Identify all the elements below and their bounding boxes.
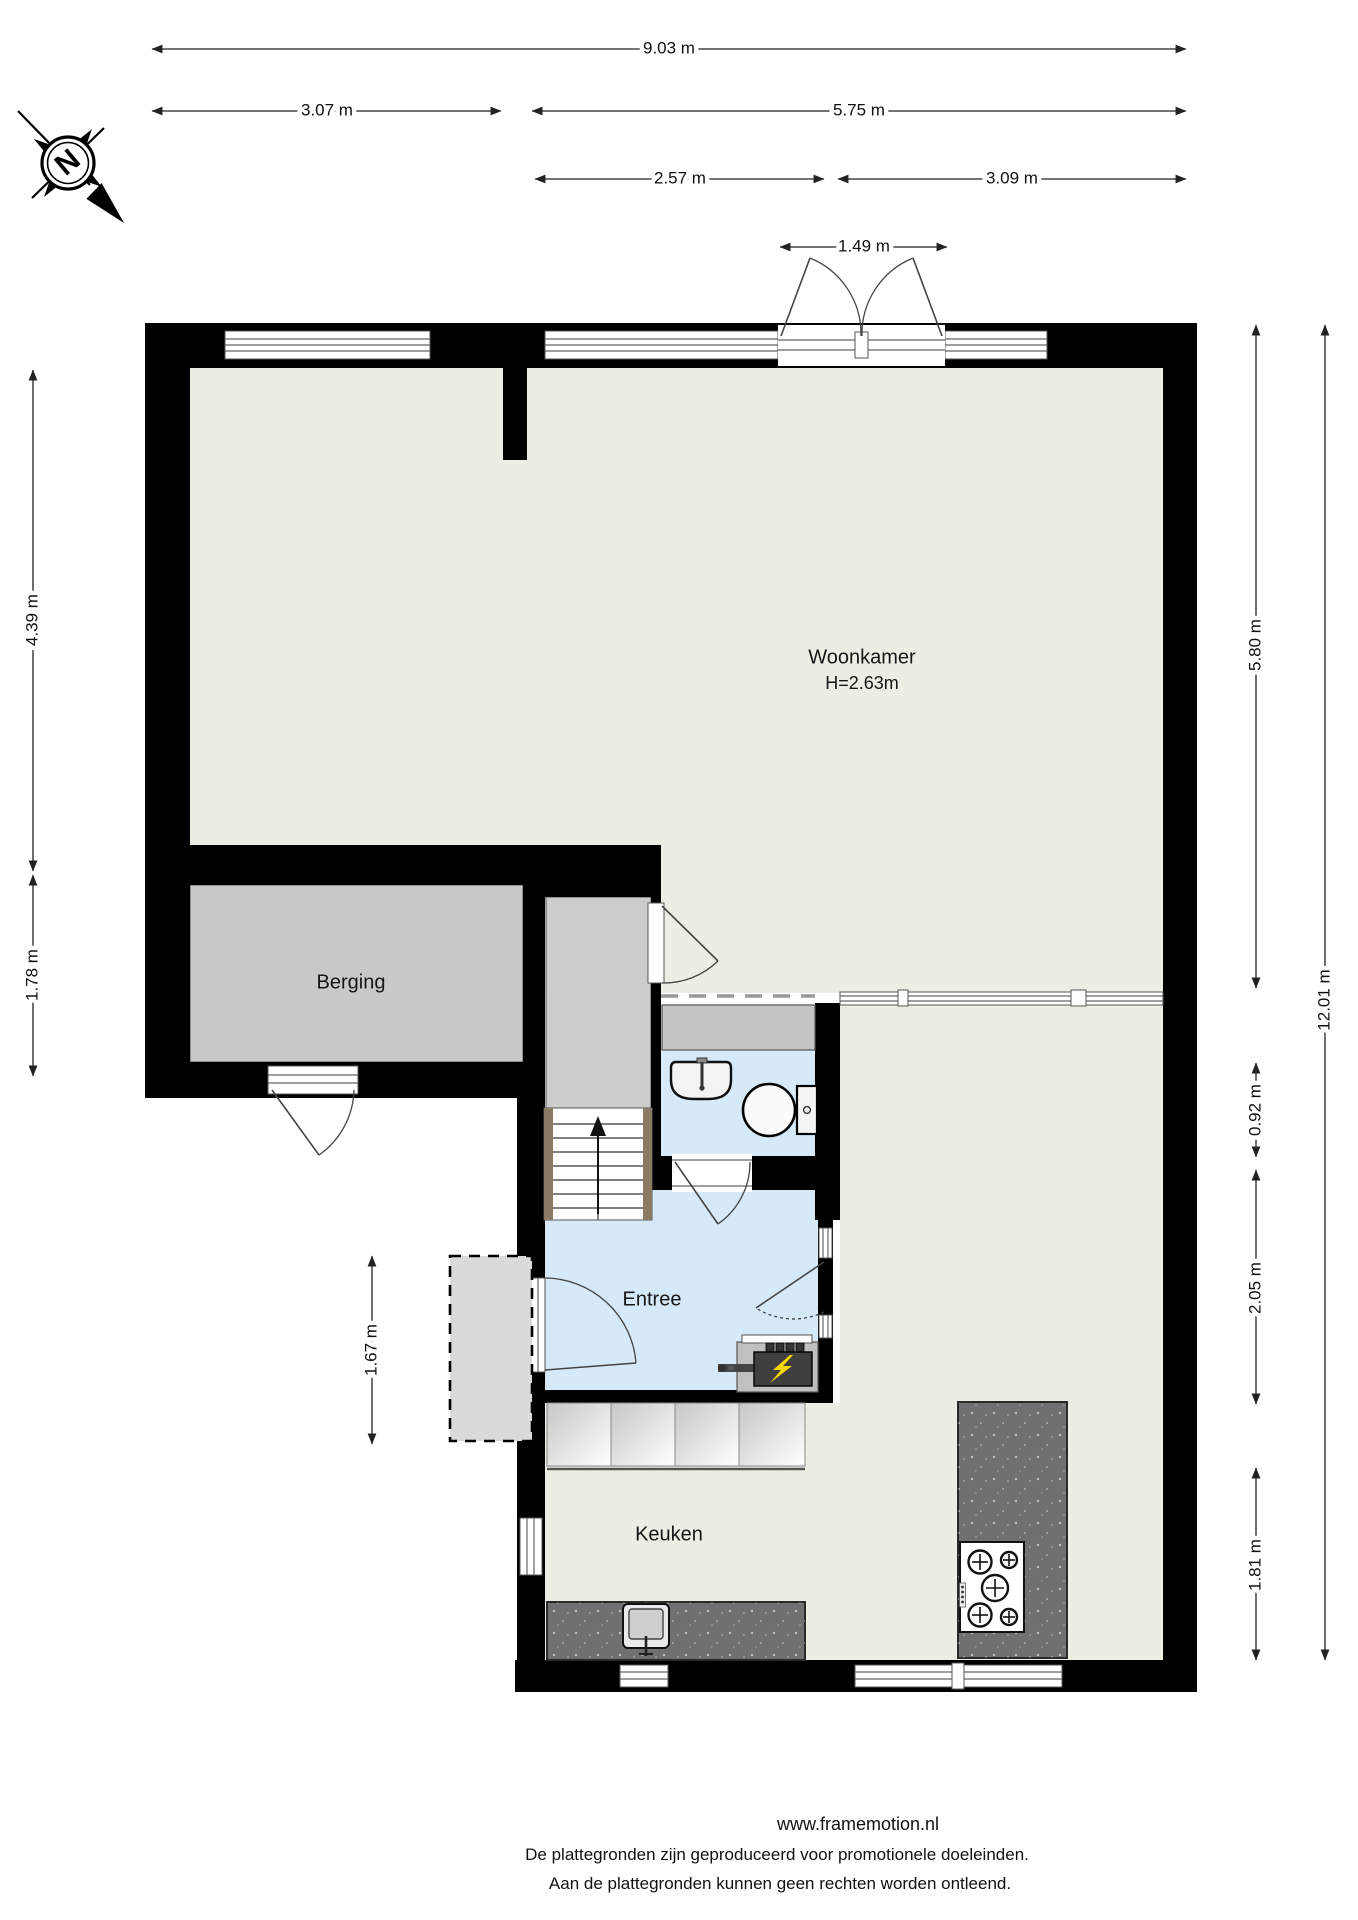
floor-plan-page: Woonkamer H=2.63m Berging Entree Keuken … [0,0,1358,1920]
french-doors [778,258,945,366]
svg-text:2.57 m: 2.57 m [654,168,706,187]
svg-text:2.05 m: 2.05 m [1245,1262,1264,1314]
partition-opening [661,993,815,1004]
window [520,1518,542,1575]
kitchen-island [958,1402,1067,1658]
dim-left-upper: 4.39 m [22,370,41,871]
dim-right-total: 12.01 m [1314,325,1333,1660]
svg-text:5.75 m: 5.75 m [833,100,885,119]
wall-left [145,323,190,1098]
footer-disclaimer-1: De plattegronden zijn geproduceerd voor … [525,1845,1029,1865]
wall-stub-top [503,368,527,460]
compass-south-arrow [86,183,124,223]
dimensions-right: 5.80 m 0.92 m 2.05 m 1.81 m 12.01 m [1245,325,1333,1660]
partition-window [840,990,1163,1006]
kitchen-counter [547,1602,805,1660]
svg-text:5.80 m: 5.80 m [1245,619,1264,671]
window [819,1228,832,1258]
dim-french-door: 1.49 m [780,236,947,255]
wardrobe [662,1005,815,1050]
svg-text:1.81 m: 1.81 m [1245,1539,1264,1591]
dim-width-right: 5.75 m [532,100,1186,119]
berging-door [268,1066,358,1155]
wall-berging-top [145,845,545,885]
svg-text:3.07 m: 3.07 m [301,100,353,119]
woonkamer-height-label: H=2.63m [825,673,899,693]
svg-text:3.09 m: 3.09 m [986,168,1038,187]
window [819,1315,832,1338]
footer-disclaimer-2: Aan de plattegronden kunnen geen rechten… [549,1874,1011,1894]
floor-plan-svg: Woonkamer H=2.63m Berging Entree Keuken … [0,0,1358,1920]
stairs [544,1108,652,1220]
svg-text:4.39 m: 4.39 m [22,594,41,646]
dim-width-mid-left: 2.57 m [535,168,824,187]
svg-text:1.67 m: 1.67 m [361,1324,380,1376]
dim-right-entree: 2.05 m [1245,1170,1264,1404]
svg-text:9.03 m: 9.03 m [643,38,695,57]
dim-width-total: 9.03 m [152,38,1186,57]
window [620,1665,668,1687]
kitchen-cabinets [547,1403,805,1469]
footer-website: www.framemotion.nl [777,1814,939,1835]
wall-right [1163,323,1197,1692]
entree-label: Entree [623,1288,682,1310]
svg-text:1.49 m: 1.49 m [838,236,890,255]
svg-text:12.01 m: 12.01 m [1314,969,1333,1030]
hall-landing-floor [546,897,651,1110]
woonkamer-label: Woonkamer [808,646,916,668]
dim-right-wc-strip: 0.92 m [1245,1063,1264,1157]
dim-left-berging: 1.78 m [22,875,41,1076]
keuken-label: Keuken [635,1523,703,1545]
toilet-icon [743,1084,817,1136]
porch-outline [450,1256,532,1441]
dim-right-woonkamer: 5.80 m [1245,325,1264,988]
svg-text:0.92 m: 0.92 m [1245,1084,1264,1136]
berging-label: Berging [317,971,386,993]
north-compass-icon: N [18,111,124,223]
dim-width-mid-right: 3.09 m [838,168,1186,187]
dimensions-top: 9.03 m 3.07 m 5.75 m 2.57 m 3.09 m 1.49 … [152,38,1186,255]
svg-text:1.78 m: 1.78 m [22,949,41,1001]
dim-porch: 1.67 m [361,1256,380,1444]
stove-icon [960,1542,1025,1632]
washbasin-icon [671,1058,731,1099]
dim-right-keuken: 1.81 m [1245,1468,1264,1660]
wall-landing-top [545,845,661,897]
kitchen-sink-icon [623,1604,669,1656]
dim-width-left: 3.07 m [152,100,501,119]
kitchen-west-window [520,1518,542,1575]
